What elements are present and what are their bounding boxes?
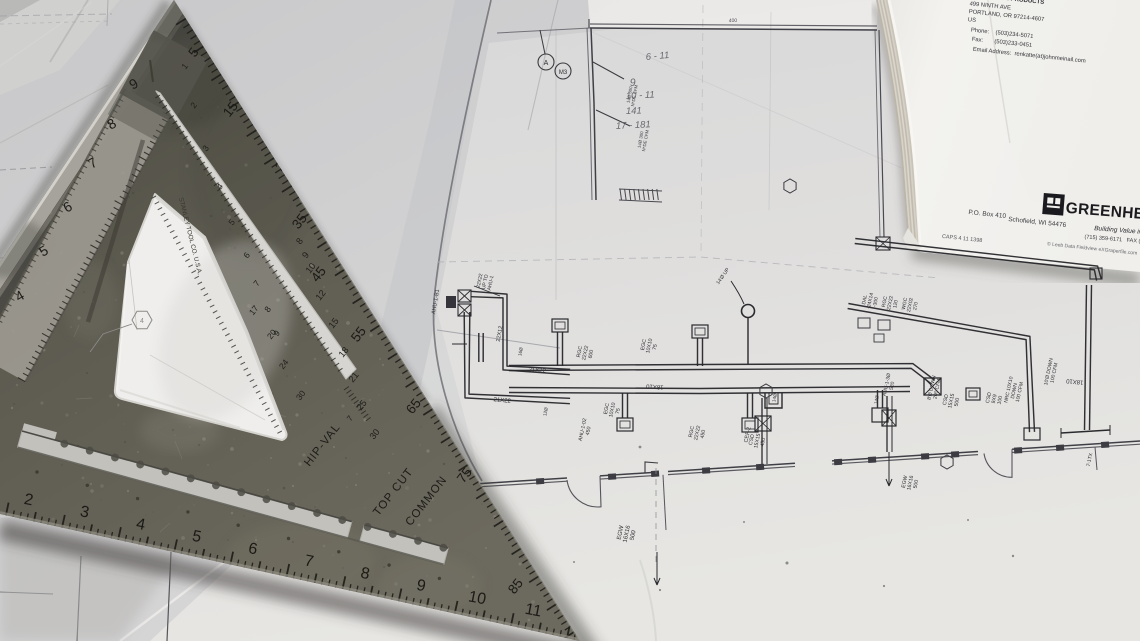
svg-text:10 - 11: 10 - 11 [626, 89, 655, 101]
svg-text:A: A [544, 60, 549, 67]
svg-text:M3: M3 [559, 70, 568, 76]
svg-text:400: 400 [729, 18, 738, 24]
svg-text:21X22: 21X22 [528, 367, 546, 374]
svg-text:17 - 181: 17 - 181 [616, 119, 651, 132]
svg-text:US: US [968, 17, 977, 24]
svg-text:6 - 11: 6 - 11 [645, 50, 669, 63]
svg-text:10: 10 [467, 588, 488, 608]
svg-text:4: 4 [140, 318, 144, 325]
svg-text:141: 141 [626, 105, 642, 117]
svg-text:11: 11 [523, 601, 543, 621]
svg-text:18X10: 18X10 [645, 382, 663, 389]
svg-text:9: 9 [630, 77, 637, 89]
